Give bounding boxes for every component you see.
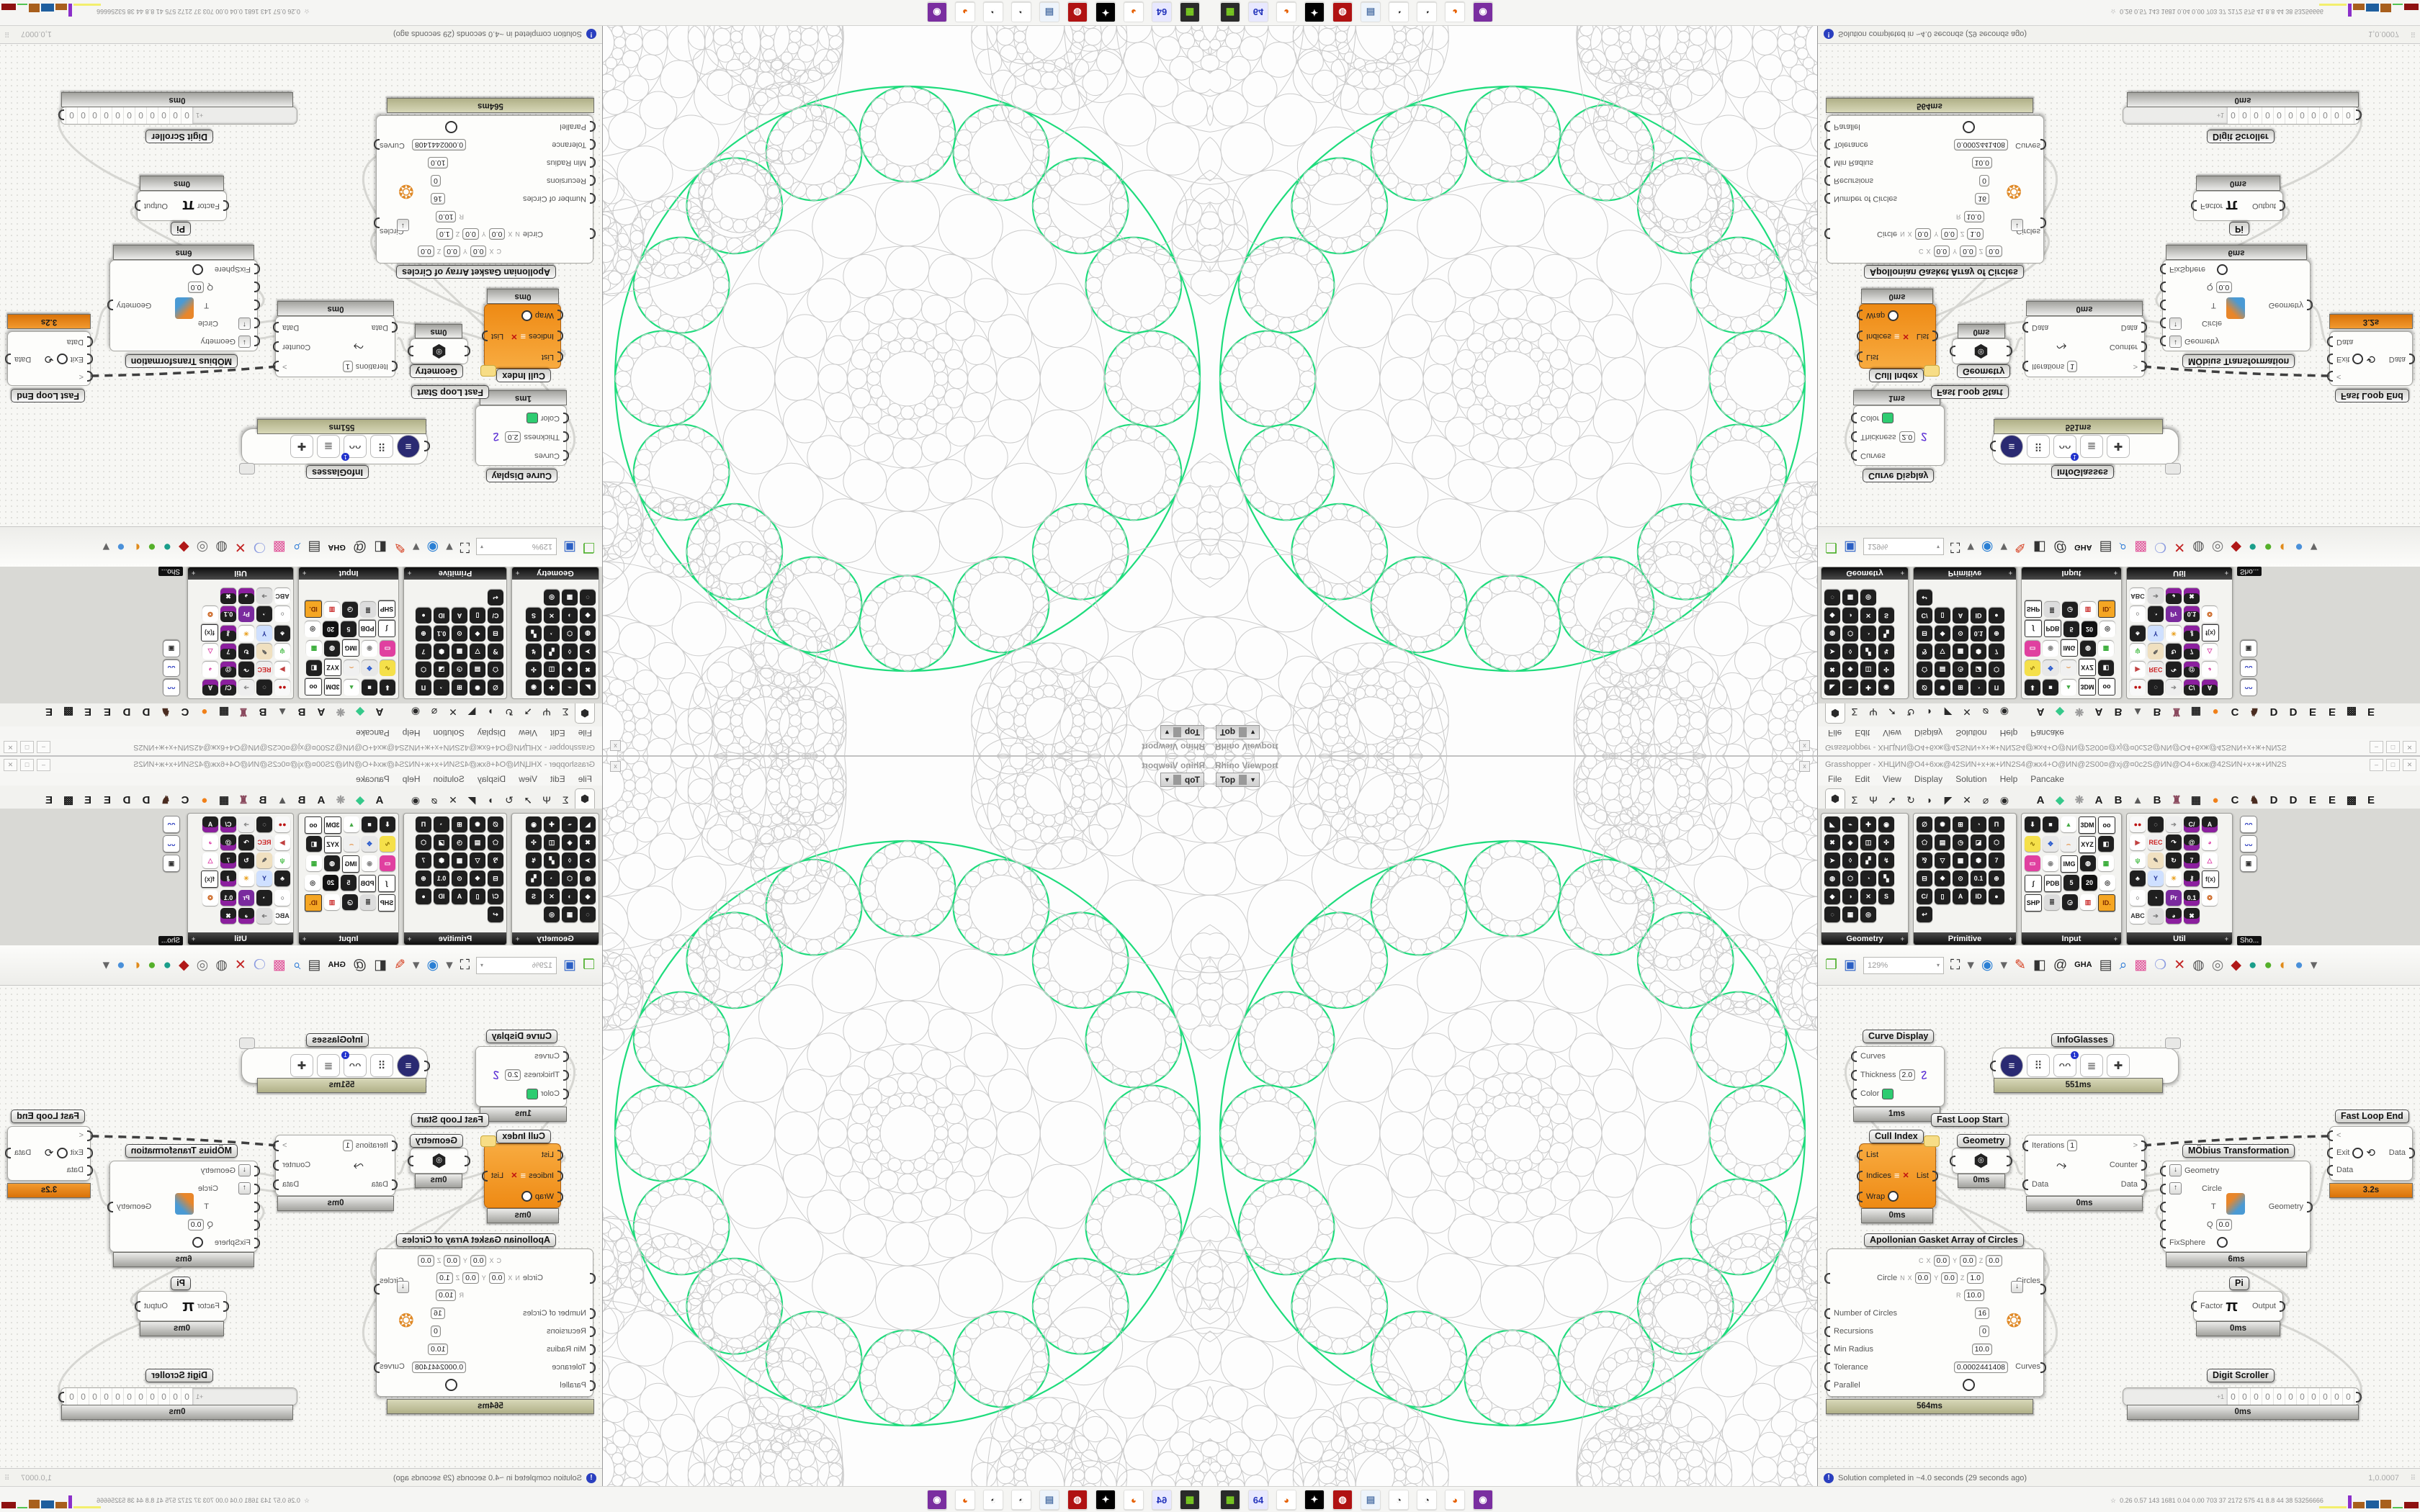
expand-icon[interactable]: + [2225,570,2228,577]
node-mobius-transformation[interactable]: ↓Geometry ↑Circle TGeometry Q0.0 FixSphe… [109,260,258,351]
palette-label[interactable]: Primitive+ [404,932,506,945]
component-icon[interactable]: ▭ [380,641,395,657]
flatten-button[interactable]: ↓ [2011,219,2023,231]
component-icon[interactable]: ↩ [488,590,503,606]
component-icon[interactable]: ID. [2098,600,2115,618]
plugin-tab[interactable]: B [254,703,272,721]
toolbar-icon[interactable]: ◆ [179,958,189,972]
digit-cell[interactable]: 0 [2251,107,2262,124]
plugin-tab[interactable]: E [2323,791,2341,809]
toolbar-icon[interactable]: ▩ [273,540,286,554]
component-icon[interactable]: ↩ [1917,590,1932,606]
toolbar-icon[interactable]: ▾ [1967,540,1974,554]
component-icon[interactable]: 5 [341,875,357,891]
menu-item[interactable]: Display [1914,728,1942,738]
component-icon[interactable]: ⬢ [434,644,449,660]
plugin-tab[interactable]: ▦ [215,791,233,809]
component-icon[interactable]: ◉ [362,855,377,871]
input-grip[interactable] [1824,1273,1830,1284]
warning-bubble-icon[interactable] [480,365,496,377]
component-icon[interactable]: ⌢ [344,660,359,676]
category-tab-icon[interactable]: ⌀ [1976,703,1995,721]
component-icon[interactable]: ◪ [1971,662,1986,678]
component-icon[interactable]: ▭ [2025,855,2040,871]
node-label-digit-scroller[interactable]: Digit Scroller [2207,1369,2275,1382]
output-grip[interactable] [408,346,413,356]
component-icon[interactable]: ▞ [544,644,560,660]
component-icon[interactable]: ▥ [324,894,340,910]
taskbar-app-icon[interactable]: ◔ [1389,2,1409,22]
wire-mobius-to-loopend[interactable] [93,1169,109,1206]
component-icon[interactable]: ▦ [1842,906,1858,922]
parallel-toggle[interactable] [445,1379,457,1391]
component-icon[interactable]: Pr [2166,606,2182,622]
component-icon[interactable]: ◧ [2098,836,2114,852]
titlebar[interactable]: Grasshopper - ХНЦИN@О4+6хж@42SИN+х+ж+ИN2… [0,757,602,773]
viewport-close-button[interactable]: x [610,740,621,751]
note-bubble-icon[interactable] [239,463,255,474]
taskbar-app-icon[interactable]: ◕ [1445,2,1465,22]
component-icon[interactable]: ≣ [360,602,376,618]
toolbar-icon[interactable]: ⌕ [293,540,301,554]
node-label-fast-loop-start[interactable]: Fast Loop Start [411,1113,489,1127]
node-label-pi[interactable]: Pi [171,1277,191,1290]
digit-cell[interactable]: 0 [135,1388,146,1405]
node-label-cull-index[interactable]: Cull Index [496,369,551,382]
grasshopper-canvas[interactable]: Curve Display Curves Thickness2.0∿ Color… [0,986,602,1468]
min-radius-value[interactable]: 10.0 [428,1344,448,1355]
maximize-button[interactable]: □ [2386,759,2400,771]
toolbar-icon[interactable]: ✕ [2174,958,2185,972]
category-tab-icon[interactable]: Ψ [537,703,556,721]
component-icon[interactable]: ◆ [1824,888,1840,904]
component-icon[interactable]: ⊞ [452,816,467,832]
component-icon[interactable]: A [452,608,467,624]
node-fast-loop-start[interactable]: Iterations1> ⤳Counter DataData [275,316,395,377]
component-icon[interactable]: ◔ [256,890,272,906]
component-icon[interactable]: 0.1 [1971,870,1986,886]
output-grip[interactable] [135,1301,140,1312]
menu-item[interactable]: Edit [550,728,565,738]
component-icon[interactable]: ABC [2130,588,2146,604]
wire-loopstart-to-mobius[interactable] [260,336,274,338]
component-icon[interactable]: ◈ [562,662,578,678]
toolbar-icon[interactable]: ✕ [235,958,246,972]
component-icon[interactable]: ◶ [342,602,358,618]
component-icon[interactable]: ≣ [360,894,376,910]
scroller-slider[interactable]: +1 [2123,107,2228,124]
wire-mobius-to-loopend[interactable] [2311,306,2327,343]
toolbar-icon[interactable]: ▾ [446,540,453,554]
category-tab-icon[interactable]: ➚ [519,703,537,721]
flatten-button[interactable]: ↓ [238,1164,251,1176]
output-grip-circles[interactable] [374,1284,380,1295]
node-fast-loop-start[interactable]: Iterations1> ⤳Counter DataData [2025,1135,2145,1196]
plugin-tab[interactable]: E [79,703,97,721]
component-icon[interactable]: ◎ [1860,590,1876,606]
toolbar-icon[interactable]: ▩ [2134,540,2147,554]
component-icon[interactable]: ◆ [580,888,596,904]
viewport-projection-dropdown[interactable]: Top ▼ [1216,773,1260,787]
component-icon[interactable]: ▦ [1842,590,1858,606]
component-icon[interactable]: IMG [342,855,359,873]
component-icon[interactable]: ▶ [2130,662,2146,678]
iterations-value[interactable]: 1 [343,361,353,373]
component-icon[interactable]: ⚷ [2184,870,2200,886]
taskbar-app-icon[interactable]: ◍ [1067,1490,1088,1510]
component-icon[interactable]: ✚ [1860,680,1876,696]
wrap-toggle[interactable] [521,1191,532,1202]
component-icon[interactable]: ABC [274,908,290,924]
component-icon[interactable]: ▽ [1935,852,1950,868]
recursions-value[interactable]: 0 [1979,176,1989,187]
category-tab-icon[interactable]: ◗ [481,703,500,721]
component-icon[interactable]: ◔ [434,680,449,696]
taskbar-app-icon[interactable]: ◔ [1417,1490,1437,1510]
component-icon[interactable]: ◶ [2062,894,2078,910]
taskbar-app-icon[interactable]: ✦ [1304,1490,1325,1510]
warning-bubble-icon[interactable] [480,1135,496,1147]
expand-icon[interactable]: + [192,570,195,577]
component-icon[interactable]: △ [202,852,218,868]
component-icon[interactable]: ◧ [306,836,322,852]
toolbar-icon[interactable]: ◐ [2280,958,2287,972]
component-icon[interactable]: ↷ [2166,662,2182,678]
digit-cell[interactable]: 0 [135,107,146,124]
input-grip[interactable] [2160,1238,2166,1248]
graft-button[interactable]: ↑ [2169,318,2182,330]
taskbar-app-icon[interactable]: ◉ [1473,1490,1493,1510]
digit-cell[interactable]: 0 [2228,1388,2239,1405]
toolbar-icon[interactable]: ▤ [308,958,321,972]
input-grip[interactable] [1851,1051,1857,1062]
component-icon[interactable]: ● [1989,608,2004,624]
plugin-tab[interactable]: E [2323,703,2341,721]
toolbar-icon[interactable]: ▾ [413,540,420,554]
toolbar-icon[interactable]: ✕ [2174,540,2185,554]
component-icon[interactable]: ∅ [488,680,503,696]
component-icon[interactable]: ᴗᴗ [163,660,180,677]
component-icon[interactable]: ▲ [2061,816,2076,832]
component-icon[interactable]: ◉ [1878,680,1894,696]
input-grip[interactable] [1990,1061,1996,1071]
r-value[interactable]: 10.0 [1964,1290,1984,1301]
component-icon[interactable]: ◔ [2148,606,2164,622]
toolbar-icon[interactable]: ⛶ [1950,958,1960,972]
plugin-tab[interactable]: ▲ [273,703,292,721]
digit-cell[interactable]: 0 [112,1388,123,1405]
input-grip[interactable] [1857,1192,1863,1202]
component-icon[interactable]: C/ [1917,888,1932,904]
parallel-toggle[interactable] [1963,121,1975,133]
graft-button[interactable]: ↑ [2169,1182,2182,1194]
min-radius-value[interactable]: 10.0 [1972,1344,1992,1355]
node-label-fast-loop-end[interactable]: Fast Loop End [11,1110,85,1123]
node-label-mobius[interactable]: MÖbius Transformation [125,354,238,368]
plugin-tab[interactable]: ◆ [2051,703,2069,721]
plugin-tab[interactable]: E [2303,791,2322,809]
taskbar-app-icon[interactable]: ◔ [1011,2,1031,22]
component-icon[interactable]: S [1878,888,1894,904]
plugin-tab[interactable]: ◆ [351,791,369,809]
fixsphere-toggle[interactable] [192,1237,203,1248]
digit-cell[interactable]: 0 [181,1388,192,1405]
category-tab-icon[interactable]: ⌀ [425,791,444,809]
c-y-value[interactable]: 0.0 [1960,246,1976,257]
n-y-value[interactable]: 0.0 [1941,228,1958,240]
node-pi[interactable]: FactorπOutput [2193,1291,2283,1321]
toolbar-icon[interactable]: ▾ [413,958,420,972]
component-icon[interactable]: ✕ [1860,888,1876,904]
category-tab-icon[interactable]: ✕ [444,703,462,721]
component-icon[interactable]: ◊ [562,852,578,868]
component-icon[interactable]: ◶ [342,894,358,910]
toolbar-icon[interactable]: ⌕ [293,958,301,972]
palette-label[interactable]: Primitive+ [1914,932,2016,945]
node-curve-display[interactable]: Curves Thickness2.0∿ Color [1853,1046,1945,1107]
node-geometry-param[interactable]: ⬢◎ [410,1148,468,1174]
expand-icon[interactable]: + [2009,935,2012,942]
component-icon[interactable]: SHP [378,894,395,912]
plugin-tab[interactable]: D [2284,703,2303,721]
infoglasses-button-theme[interactable]: ≡ [2000,1054,2023,1077]
c-z-value[interactable]: 0.0 [418,1255,434,1266]
plugin-tab[interactable]: D [2284,791,2303,809]
node-label-geometry[interactable]: Geometry [410,364,463,378]
toolbar-icon[interactable]: GHA [328,543,345,551]
menu-item[interactable]: View [519,728,537,738]
component-icon[interactable]: ✥ [362,836,377,852]
node-label-apollonian[interactable]: Apollonian Gasket Array of Circles [396,265,556,279]
digit-cell[interactable]: 0 [2274,107,2285,124]
toolbar-icon[interactable]: ▤ [2099,958,2112,972]
component-icon[interactable]: S [526,888,542,904]
graft-button[interactable]: ↑ [238,318,251,330]
input-grip[interactable] [1824,1308,1830,1319]
palette-label[interactable]: Util+ [2127,567,2232,580]
viewport-projection-dropdown[interactable]: Top ▼ [1160,773,1204,787]
component-icon[interactable]: ◷ [1953,662,1968,678]
toolbar-icon[interactable]: ● [117,540,125,554]
node-label-infoglasses[interactable]: InfoGlasses [2051,1033,2114,1047]
expand-icon[interactable]: + [2114,570,2117,577]
component-icon[interactable]: ▣ [163,855,180,872]
component-icon[interactable]: ◪ [434,662,449,678]
component-icon[interactable]: ID [434,888,449,904]
toolbar-icon[interactable]: ◍ [2192,958,2205,972]
component-icon[interactable]: ⊞ [1953,816,1968,832]
plugin-tab[interactable]: C [176,703,194,721]
component-icon[interactable]: REC [256,834,272,850]
input-grip[interactable] [2160,1220,2166,1230]
component-icon[interactable]: ✺ [1935,816,1950,832]
toolbar-icon[interactable]: ▾ [103,958,110,972]
digit-cell[interactable]: 0 [2343,1388,2354,1405]
infoglasses-button-archive[interactable]: ≣ [2080,1054,2103,1077]
component-icon[interactable]: ✣ [1878,834,1894,850]
component-icon[interactable]: ◕ [2166,908,2182,924]
component-icon[interactable]: ◕ [2166,588,2182,604]
output-grip[interactable] [135,200,140,211]
node-geometry-param[interactable]: ⬢◎ [1952,1148,2010,1174]
taskbar-app-icon[interactable]: ◕ [1124,2,1144,22]
component-icon[interactable]: 5 [2063,875,2079,891]
component-icon[interactable]: ↷ [2166,834,2182,850]
component-icon[interactable]: ✣ [526,834,542,850]
palette-label[interactable]: Geometry+ [1821,567,1908,580]
plugin-tab[interactable]: C [2226,703,2244,721]
toolbar-icon[interactable]: ◐ [2280,540,2287,554]
wire-pi-to-scroller[interactable] [2272,1321,2361,1395]
component-icon[interactable]: ⬢ [1971,644,1986,660]
component-icon[interactable]: ◔ [1860,626,1876,642]
graft-button[interactable]: ↑ [238,1182,251,1194]
component-icon[interactable]: ▩ [452,644,467,660]
component-icon[interactable]: ⊟ [1917,626,1932,642]
component-icon[interactable]: ID [1971,608,1986,624]
component-icon[interactable]: ☀ [238,626,254,642]
component-icon[interactable]: ⅋ [1917,852,1932,868]
component-icon[interactable]: ⊕ [1989,870,2004,886]
taskbar-app-icon[interactable]: 64 [1248,2,1268,22]
component-icon[interactable]: 7 [2184,644,2200,660]
toolbar-icon[interactable]: ◐ [133,958,140,972]
node-label-apollonian[interactable]: Apollonian Gasket Array of Circles [1864,265,2024,279]
wire-loopstart-to-mobius[interactable] [260,1174,274,1176]
component-icon[interactable]: ◌ [2148,816,2164,832]
component-icon[interactable]: ⌁ [562,816,578,832]
category-tab-icon[interactable]: ↻ [1901,703,1920,721]
taskbar-app-icon[interactable]: ✦ [1304,2,1325,22]
infoglasses-button-grid[interactable]: ⠿ [2027,435,2050,458]
n-z-value[interactable]: 1.0 [1967,228,1984,240]
plugin-tab[interactable]: E [98,703,117,721]
plugin-tab[interactable]: ▩ [2342,791,2361,809]
plugin-tab[interactable]: ♞ [2245,703,2264,721]
node-label-curve-display[interactable]: Curve Display [1863,1030,1934,1043]
toolbar-icon[interactable]: ● [2295,958,2303,972]
wire-pi-to-scroller[interactable] [59,1321,148,1395]
toolbar-icon[interactable]: ◎ [197,540,209,554]
plugin-tab[interactable]: B [2109,791,2128,809]
category-tab-icon[interactable]: ⌀ [425,703,444,721]
component-icon[interactable]: ψ [274,852,290,868]
component-icon[interactable]: ➔ [2166,816,2182,832]
node-cull-index[interactable]: List Indices≡✕List Wrap [1859,1143,1936,1208]
plugin-tab[interactable]: A [2031,703,2050,721]
plugin-tab[interactable]: ▲ [2128,791,2147,809]
component-icon[interactable]: ∫ [2025,875,2042,892]
component-icon[interactable]: ⊙ [1953,870,1968,886]
component-icon[interactable]: ◷ [452,662,467,678]
node-label-digit-scroller[interactable]: Digit Scroller [145,130,213,143]
component-icon[interactable]: ◉ [526,680,542,696]
component-icon[interactable]: ◑ [562,888,578,904]
component-icon[interactable]: ✥ [2043,660,2058,676]
toolbar-icon[interactable]: ◉ [427,540,439,554]
component-icon[interactable]: ➔ [256,908,272,924]
component-icon[interactable]: ▭ [2025,641,2040,657]
component-icon[interactable]: ⅋ [488,852,503,868]
component-icon[interactable]: ⬢ [1971,852,1986,868]
component-icon[interactable]: ✖ [1824,662,1840,678]
component-icon[interactable]: ◫ [1860,662,1876,678]
n-x-value[interactable]: 0.0 [1915,228,1932,240]
close-button[interactable]: ✕ [2403,741,2416,753]
wire-mobius-to-loopend[interactable] [2311,1169,2327,1206]
minimize-button[interactable]: – [37,759,50,771]
parallel-toggle[interactable] [445,121,457,133]
output-grip[interactable] [273,1140,279,1151]
node-pi[interactable]: FactorπOutput [137,191,227,221]
component-icon[interactable]: ◊ [1842,644,1858,660]
toolbar-icon[interactable]: GHA [2074,961,2092,969]
plugin-tab[interactable]: ♞ [156,703,175,721]
taskbar-app-icon[interactable]: ▦ [1180,2,1200,22]
component-icon[interactable]: ⬡ [416,834,431,850]
component-icon[interactable]: ◉ [526,816,542,832]
component-icon[interactable]: ᴗᴗ [2240,660,2257,677]
category-tab-icon[interactable]: Σ [1845,791,1864,809]
component-icon[interactable]: ◪ [434,834,449,850]
component-icon[interactable]: ↯ [526,644,542,660]
component-icon[interactable]: ▤ [470,662,485,678]
node-label-cull-index[interactable]: Cull Index [1869,1130,1924,1143]
toolbar-icon[interactable]: ◎ [197,958,209,972]
component-icon[interactable]: ▶ [2130,834,2146,850]
component-icon[interactable]: PDB [2044,620,2061,637]
component-icon[interactable]: ∅ [1917,680,1932,696]
digit-cell[interactable]: 0 [2239,107,2251,124]
exit-toggle[interactable] [2352,1148,2363,1158]
toolbar-icon[interactable]: ▾ [103,540,110,554]
component-icon[interactable]: ❖ [470,626,485,642]
node-pi[interactable]: FactorπOutput [2193,191,2283,221]
category-tab-icon[interactable]: ◉ [1995,703,2014,721]
output-grip[interactable] [107,1202,113,1212]
expand-icon[interactable]: + [1901,935,1904,942]
node-label-curve-display[interactable]: Curve Display [486,469,557,482]
menu-item[interactable]: Display [478,728,506,738]
component-icon[interactable]: ▽ [470,852,485,868]
component-icon[interactable]: △ [202,644,218,660]
taskbar-app-icon[interactable]: ✦ [1095,2,1116,22]
plugin-tab[interactable]: ▦ [2187,791,2205,809]
component-icon[interactable]: ◈ [562,834,578,850]
toolbar-icon[interactable]: ✎ [394,540,405,554]
component-icon[interactable]: ⌁ [1842,816,1858,832]
component-icon[interactable]: ◶ [2062,602,2078,618]
taskbar-app-icon[interactable]: ◔ [1011,1490,1031,1510]
plugin-tab[interactable]: ♜ [234,703,253,721]
plugin-tab[interactable]: E [98,791,117,809]
component-icon[interactable]: ⬇ [380,816,395,832]
component-icon[interactable]: 0.1 [2184,606,2200,622]
node-apollonian-gasket[interactable]: CX0.0Y0.0Z0.0 CircleNX0.0Y0.0Z1.0Circles… [376,1248,593,1397]
category-tab-icon[interactable]: Σ [1845,703,1864,721]
parallel-toggle[interactable] [1963,1379,1975,1391]
plugin-tab[interactable]: ❋ [331,791,350,809]
component-icon[interactable]: ▶ [274,662,290,678]
iterations-value[interactable]: 1 [2067,361,2077,373]
component-icon[interactable]: ▥ [2080,602,2096,618]
component-icon[interactable]: ⬠ [488,662,503,678]
infoglasses-button-glasses[interactable]: ᴖᴖ1 [2053,1054,2076,1077]
palette-label[interactable]: Geometry+ [1821,932,1908,945]
output-grip[interactable] [5,354,11,364]
component-icon[interactable]: ◍ [2080,855,2096,871]
category-tab-icon[interactable]: ◉ [406,791,425,809]
